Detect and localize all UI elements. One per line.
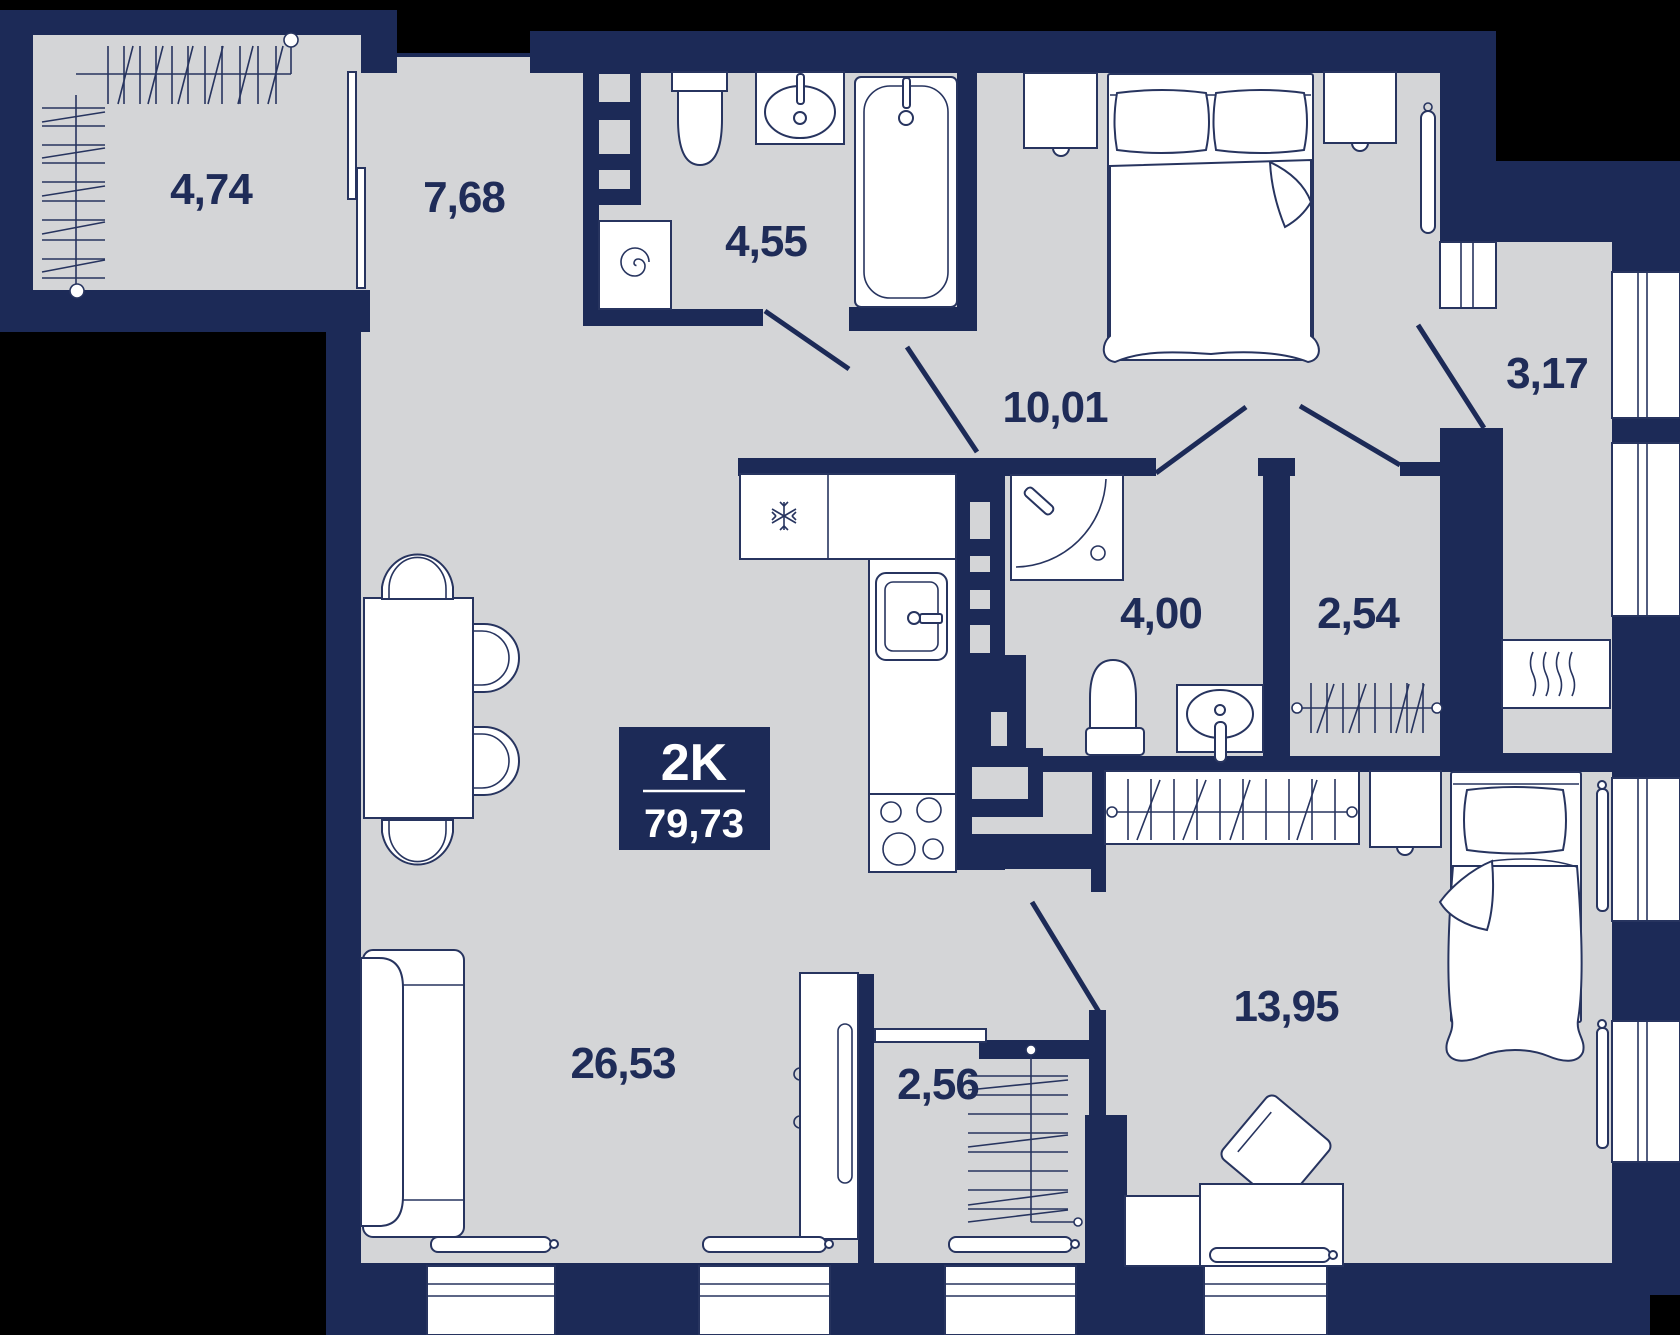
svg-text:7,68: 7,68 bbox=[423, 173, 505, 222]
svg-text:4,00: 4,00 bbox=[1120, 589, 1202, 638]
svg-text:79,73: 79,73 bbox=[644, 802, 744, 846]
svg-text:4,55: 4,55 bbox=[725, 217, 807, 266]
svg-text:2,54: 2,54 bbox=[1317, 589, 1400, 638]
svg-text:4,74: 4,74 bbox=[170, 165, 253, 214]
svg-text:26,53: 26,53 bbox=[570, 1039, 675, 1088]
svg-text:3,17: 3,17 bbox=[1506, 349, 1588, 398]
svg-text:2K: 2K bbox=[661, 734, 728, 792]
svg-text:10,01: 10,01 bbox=[1002, 383, 1108, 432]
svg-text:13,95: 13,95 bbox=[1233, 982, 1339, 1031]
svg-text:2,56: 2,56 bbox=[897, 1060, 979, 1109]
